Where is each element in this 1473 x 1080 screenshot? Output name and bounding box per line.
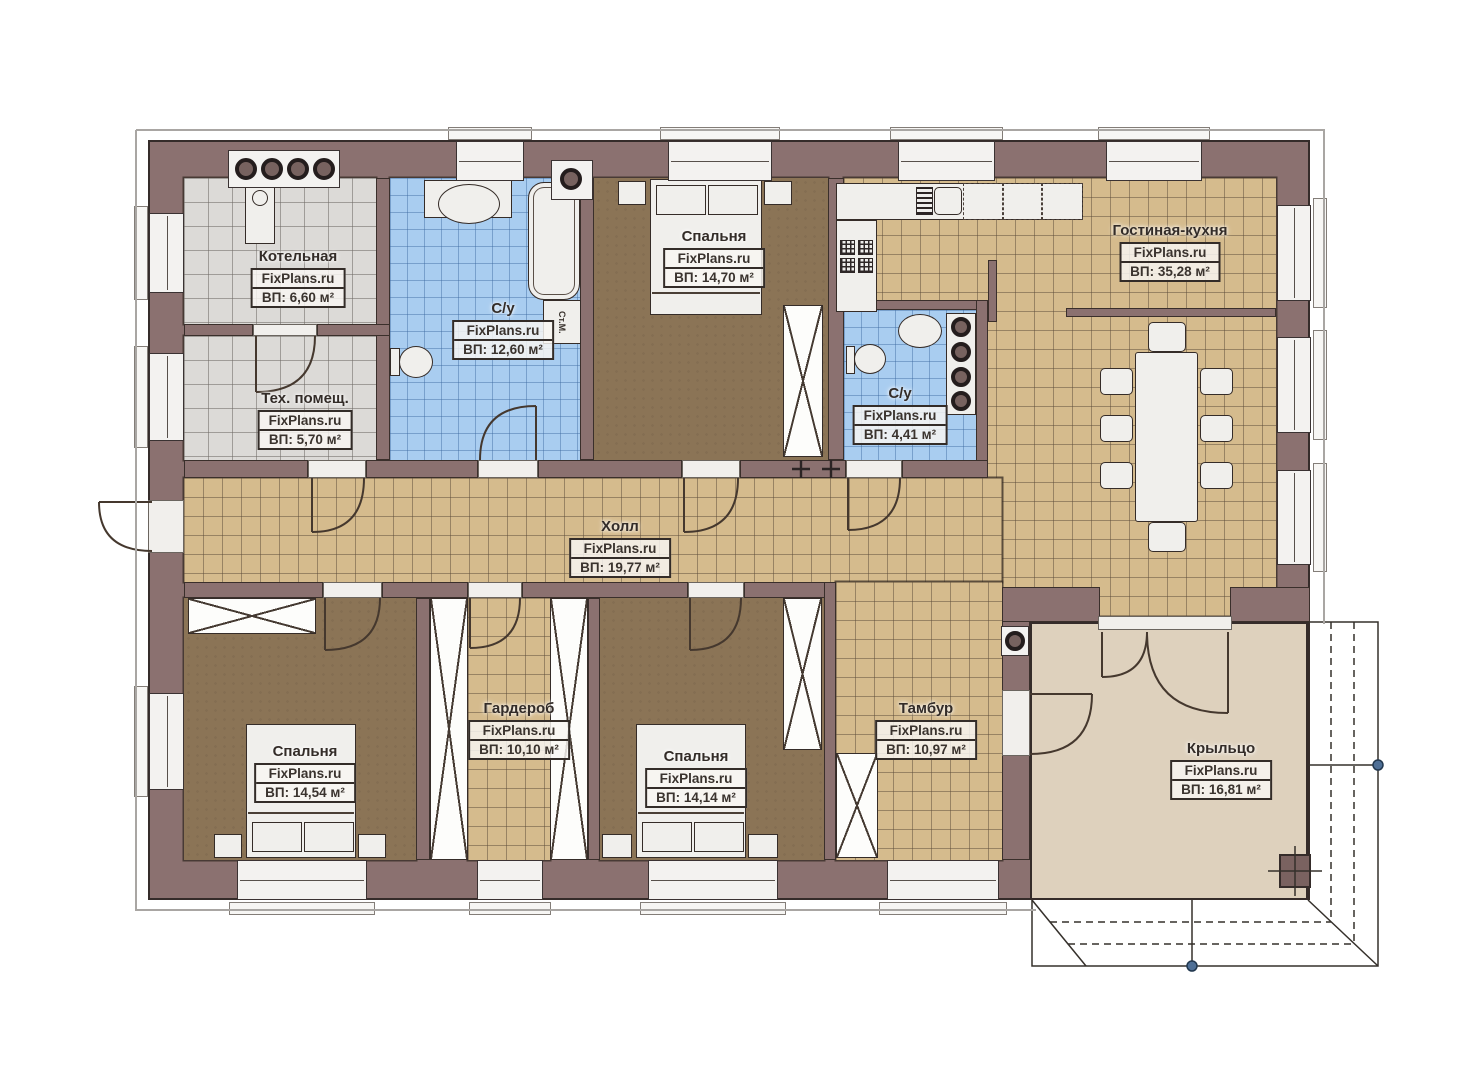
watermark: FixPlans.ru (454, 322, 552, 341)
sill-bottom-2 (469, 902, 551, 915)
wall-boiler-bath (376, 178, 390, 460)
sill-right-3 (1313, 463, 1327, 572)
room-area: ВП: 10,97 м² (877, 741, 975, 758)
stove-burner-2 (858, 240, 873, 255)
sill-top-2 (660, 127, 780, 140)
sill-right-1 (1313, 198, 1327, 308)
sill-bottom-3 (640, 902, 786, 915)
nightstand (748, 834, 778, 858)
room-label-hall: Холл FixPlans.ruВП: 19,77 м² (569, 518, 671, 578)
room-name: Спальня (273, 743, 338, 760)
sill-left-3 (134, 686, 148, 797)
vent-circle-vestibule (1005, 631, 1025, 651)
kitchen-sink-basin (934, 187, 962, 215)
vent-circle-2 (261, 158, 283, 180)
dining-chair-right-1 (1200, 368, 1233, 395)
watermark: FixPlans.ru (470, 722, 568, 741)
room-name: С/у (491, 300, 514, 317)
room-name: Спальня (664, 748, 729, 765)
wall-boiler-tech-right (317, 324, 390, 336)
window-bottom-4 (887, 860, 999, 900)
room-area: ВП: 35,28 м² (1121, 263, 1219, 280)
room-label-vestibule: Тамбур FixPlans.ruВП: 10,97 м² (875, 700, 977, 760)
window-bottom-2 (477, 860, 543, 900)
porch-column (1279, 854, 1311, 888)
stove-burner-3 (840, 258, 855, 273)
dining-chair-left-2 (1100, 415, 1133, 442)
pillow (642, 822, 692, 852)
window-left-2 (149, 353, 184, 441)
sill-top-3 (890, 127, 1003, 140)
wall-bedroom-left-right (416, 598, 430, 860)
heater-ring-1 (951, 317, 971, 337)
vent-circle-4 (313, 158, 335, 180)
dining-chair-right-2 (1200, 415, 1233, 442)
room-name: Тех. помещ. (261, 390, 349, 407)
sill-top-1 (448, 127, 532, 140)
room-name: Крыльцо (1187, 740, 1255, 757)
watermark: FixPlans.ru (665, 250, 763, 269)
watermark: FixPlans.ru (1121, 244, 1219, 263)
closet-wardrobe-left (430, 598, 468, 860)
closet-vestibule (836, 753, 878, 858)
room-area: ВП: 10,10 м² (470, 741, 568, 758)
room-area: ВП: 16,81 м² (1172, 781, 1270, 798)
wall-porch-top-left (1002, 587, 1100, 622)
pillow (694, 822, 744, 852)
room-label-wardrobe: Гардероб FixPlans.ruВП: 10,10 м² (468, 700, 570, 760)
door-gap-bedroom-top (682, 460, 740, 478)
closet-bedroom-top (783, 305, 823, 457)
dining-table (1135, 352, 1198, 522)
room-area: ВП: 4,41 м² (855, 426, 946, 443)
watermark: FixPlans.ru (253, 270, 344, 289)
node-dot-bottom (1187, 961, 1197, 971)
room-area: ВП: 19,77 м² (571, 559, 669, 576)
door-gap-bedroom-middle (688, 582, 744, 598)
wall-bedroom-middle-right (824, 582, 836, 860)
heater-ring-4 (951, 391, 971, 411)
room-area: ВП: 14,70 м² (665, 269, 763, 286)
nightstand (618, 181, 646, 205)
wall-bath-bedroom (580, 178, 594, 460)
wall-hall-bottom-3 (522, 582, 688, 598)
room-name: Тамбур (899, 700, 953, 717)
room-label-bedroom-left: Спальня FixPlans.ruВП: 14,54 м² (254, 743, 356, 803)
door-gap-wardrobe (468, 582, 522, 598)
watermark: FixPlans.ru (256, 765, 354, 784)
watermark: FixPlans.ru (855, 407, 946, 426)
nightstand (358, 834, 386, 858)
sill-left-2 (134, 346, 148, 448)
dining-chair-left-1 (1100, 368, 1133, 395)
window-right-2 (1277, 337, 1311, 433)
room-label-tech-room: Тех. помещ. FixPlans.ruВП: 5,70 м² (258, 390, 353, 450)
room-label-bedroom-middle: Спальня FixPlans.ruВП: 14,14 м² (645, 748, 747, 808)
wall-porch-top-right (1230, 587, 1310, 622)
room-area: ВП: 5,70 м² (260, 431, 351, 448)
room-area: ВП: 6,60 м² (253, 289, 344, 306)
room-label-porch: Крыльцо FixPlans.ruВП: 16,81 м² (1170, 740, 1272, 800)
watermark: FixPlans.ru (260, 412, 351, 431)
sill-left-1 (134, 206, 148, 300)
window-top-4 (1106, 141, 1202, 181)
bathroom-sink (438, 184, 500, 224)
wall-stub-living (1066, 308, 1276, 317)
door-gap-vestibule-porch (1002, 690, 1030, 756)
kitchen-cabinet-dashed-3 (1042, 183, 1083, 220)
room-label-boiler: Котельная FixPlans.ruВП: 6,60 м² (251, 248, 346, 308)
heater-ring-3 (951, 367, 971, 387)
room-label-bathroom-small: С/у FixPlans.ruВП: 4,41 м² (853, 385, 948, 445)
pillow (252, 822, 302, 852)
dining-chair-right-3 (1200, 462, 1233, 489)
wall-hall-bottom-1 (184, 582, 323, 598)
toilet-main-bowl (399, 346, 433, 378)
door-gap-bedroom-left (323, 582, 382, 598)
room-area: ВП: 12,60 м² (454, 341, 552, 358)
wall-bathroom-small-right (976, 300, 988, 478)
room-label-living-kitchen: Гостиная-кухня FixPlans.ruВП: 35,28 м² (1113, 222, 1228, 282)
watermark: FixPlans.ru (571, 540, 669, 559)
door-gap-boiler-tech (253, 324, 317, 336)
room-name: Гардероб (484, 700, 555, 717)
watermark: FixPlans.ru (877, 722, 975, 741)
window-bottom-3 (648, 860, 778, 900)
wall-hall-top-1 (184, 460, 308, 478)
stove-burner-1 (840, 240, 855, 255)
nightstand (602, 834, 632, 858)
watermark: FixPlans.ru (647, 770, 745, 789)
nightstand (214, 834, 242, 858)
window-top-1 (456, 141, 524, 181)
wall-hall-bottom-2 (382, 582, 468, 598)
room-area: ВП: 14,14 м² (647, 789, 745, 806)
watermark: FixPlans.ru (1172, 762, 1270, 781)
wall-hall-top-4 (740, 460, 846, 478)
room-area: ВП: 14,54 м² (256, 784, 354, 801)
dining-chair-top (1148, 322, 1186, 352)
window-right-3 (1277, 470, 1311, 565)
pillow (656, 185, 706, 215)
sill-right-2 (1313, 330, 1327, 440)
room-name: Гостиная-кухня (1113, 222, 1228, 239)
blanket-line (638, 812, 744, 814)
window-top-3 (898, 141, 995, 181)
room-name: Холл (601, 518, 639, 535)
wall-hall-top-3 (538, 460, 682, 478)
wall-stub-kitchen (988, 260, 997, 322)
vent-circle-1 (235, 158, 257, 180)
sill-top-4 (1098, 127, 1210, 140)
room-label-bathroom-main: С/у FixPlans.ruВП: 12,60 м² (452, 300, 554, 360)
kitchen-cabinet-dashed-1 (963, 183, 1003, 220)
door-gap-hall-exterior (148, 500, 184, 553)
window-left-3 (149, 693, 184, 790)
stove-burner-4 (858, 258, 873, 273)
node-dot-right (1373, 760, 1383, 770)
window-top-2 (668, 141, 772, 181)
pillow (708, 185, 758, 215)
door-gap-bathroom-small (846, 460, 902, 478)
vent-circle-bathroom (560, 168, 582, 190)
dining-chair-bottom (1148, 522, 1186, 552)
pillow (304, 822, 354, 852)
kitchen-cabinet-dashed-2 (1003, 183, 1042, 220)
closet-bedroom-middle (783, 598, 822, 750)
closet-bedroom-left (188, 598, 316, 634)
sink-small (898, 314, 942, 348)
toilet-small-bowl (854, 344, 886, 374)
window-left-1 (149, 213, 184, 293)
room-name: Спальня (682, 228, 747, 245)
room-name: Котельная (259, 248, 338, 265)
sill-bottom-4 (879, 902, 1007, 915)
blanket-line (652, 292, 760, 294)
floor-plan: Ст.М. (0, 0, 1473, 1080)
room-label-bedroom-top: Спальня FixPlans.ruВП: 14,70 м² (663, 228, 765, 288)
room-name: С/у (888, 385, 911, 402)
heater-ring-2 (951, 342, 971, 362)
wall-wardrobe-right (588, 598, 600, 860)
boiler-circle (252, 190, 268, 206)
washing-machine-label: Ст.М. (557, 311, 567, 334)
sill-bottom-1 (229, 902, 375, 915)
wall-hall-bottom-4 (744, 582, 836, 598)
kitchen-sink-rack (916, 187, 933, 215)
dining-chair-left-3 (1100, 462, 1133, 489)
door-gap-tech-hall (308, 460, 366, 478)
door-threshold-porch (1098, 616, 1232, 630)
blanket-line (248, 812, 354, 814)
door-gap-bathroom-main (478, 460, 538, 478)
window-bottom-1 (237, 860, 367, 900)
wall-boiler-tech-left (184, 324, 253, 336)
window-right-1 (1277, 205, 1311, 301)
nightstand (764, 181, 792, 205)
vent-circle-3 (287, 158, 309, 180)
wall-hall-top-5 (902, 460, 988, 478)
wall-hall-top-2 (366, 460, 478, 478)
